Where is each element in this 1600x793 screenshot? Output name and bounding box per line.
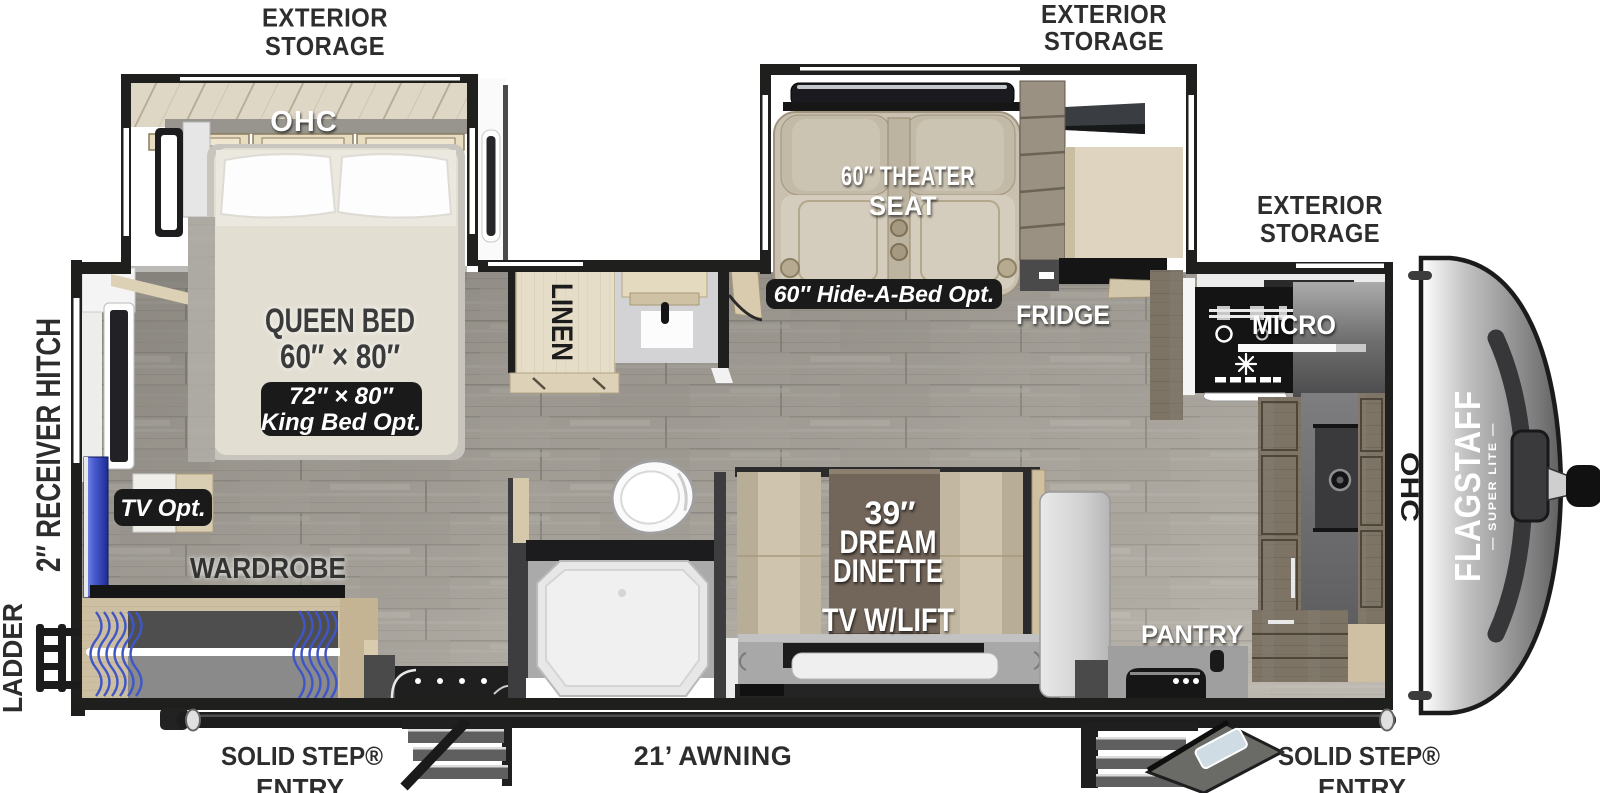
svg-text:DINETTE: DINETTE	[833, 553, 943, 589]
svg-text:2″ RECEIVER HITCH: 2″ RECEIVER HITCH	[30, 318, 68, 572]
svg-text:SOLID STEP®: SOLID STEP®	[1278, 741, 1440, 771]
svg-text:— SUPER LITE —: — SUPER LITE —	[1487, 422, 1499, 550]
svg-text:FRIDGE: FRIDGE	[1016, 300, 1110, 330]
svg-text:LINEN: LINEN	[545, 283, 578, 361]
svg-text:ENTRY: ENTRY	[1318, 773, 1406, 793]
svg-text:SOLID STEP®: SOLID STEP®	[221, 741, 383, 771]
svg-text:TV Opt.: TV Opt.	[120, 495, 205, 522]
svg-text:PANTRY: PANTRY	[1141, 621, 1243, 649]
svg-text:EXTERIOR: EXTERIOR	[1041, 1, 1167, 29]
svg-text:60″ Hide-A-Bed Opt.: 60″ Hide-A-Bed Opt.	[774, 281, 995, 307]
svg-text:60″ × 80″: 60″ × 80″	[280, 338, 400, 376]
svg-text:FLAGSTAFF: FLAGSTAFF	[1447, 390, 1488, 582]
svg-text:SEAT: SEAT	[869, 191, 937, 221]
svg-text:King Bed Opt.: King Bed Opt.	[261, 409, 421, 436]
svg-text:STORAGE: STORAGE	[1044, 28, 1164, 56]
svg-text:OHC: OHC	[1395, 452, 1423, 522]
svg-text:72″ × 80″: 72″ × 80″	[289, 383, 394, 410]
svg-text:LADDER: LADDER	[0, 603, 28, 713]
svg-text:TV W/LIFT: TV W/LIFT	[822, 602, 954, 638]
svg-text:EXTERIOR: EXTERIOR	[1257, 192, 1383, 220]
svg-text:WARDROBE: WARDROBE	[190, 553, 346, 585]
svg-text:STORAGE: STORAGE	[1260, 220, 1380, 248]
svg-text:ENTRY: ENTRY	[256, 773, 344, 793]
svg-text:EXTERIOR: EXTERIOR	[262, 5, 388, 33]
svg-text:OHC: OHC	[270, 106, 337, 138]
svg-text:STORAGE: STORAGE	[265, 33, 385, 61]
svg-text:MICRO: MICRO	[1252, 310, 1336, 340]
svg-text:21’ AWNING: 21’ AWNING	[634, 741, 793, 771]
svg-text:QUEEN BED: QUEEN BED	[265, 302, 415, 340]
svg-text:60″ THEATER: 60″ THEATER	[841, 161, 975, 191]
